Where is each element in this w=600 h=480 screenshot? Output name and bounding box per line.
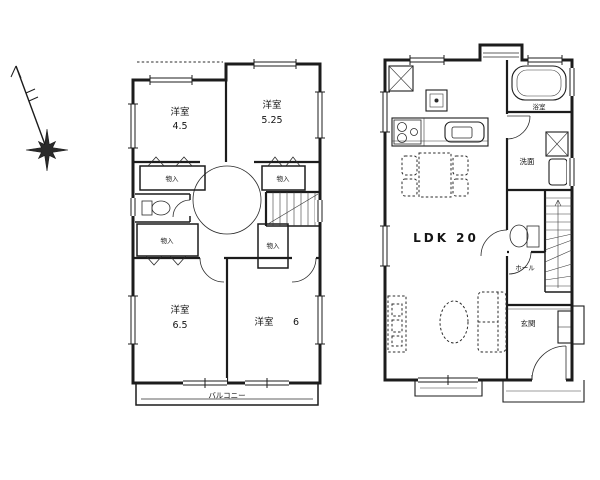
balcony-label: バルコニー — [208, 391, 245, 400]
room-size: 6 — [293, 317, 299, 328]
floorplan-2f: バルコニー 物入 物入 物入 — [128, 59, 325, 405]
room-name: 洋室 — [170, 304, 189, 316]
bath-label: 浴室 — [533, 102, 547, 111]
closet-label: 物入 — [267, 241, 281, 250]
closet-se: 物入 — [258, 224, 288, 268]
room-name: 洋室 — [254, 316, 273, 328]
tv-board — [388, 296, 406, 352]
washroom-label: 洗面 — [520, 156, 535, 166]
stairs-1f — [545, 198, 572, 292]
living-table — [440, 301, 468, 343]
kitchen — [389, 66, 488, 146]
refrigerator-space — [389, 66, 413, 91]
toilet-1f — [507, 190, 545, 274]
room-size: 4.5 — [172, 121, 187, 132]
stairs-2f — [266, 192, 320, 226]
room-name: 洋室 — [170, 106, 189, 118]
hall-door-arcs — [193, 166, 261, 234]
compass-icon — [11, 66, 68, 171]
room-nw-label: 洋室 4.5 — [170, 106, 189, 132]
toilet-2f — [135, 194, 190, 222]
room-ne-label: 洋室 5.25 — [261, 99, 282, 126]
room-sw-label: 洋室 6.5 — [170, 304, 189, 331]
floorplan-drawing: バルコニー 物入 物入 物入 — [0, 0, 600, 480]
room-se-label: 洋室 6 — [254, 316, 299, 328]
floor-hatch — [426, 90, 447, 111]
dining-set — [402, 153, 468, 197]
closet-label: 物入 — [277, 174, 291, 183]
hall-label: ホール — [515, 264, 535, 272]
entrance-label: 玄関 — [521, 318, 536, 328]
closet-label: 物入 — [166, 174, 180, 183]
room-size: 6.5 — [172, 320, 187, 331]
bathroom: 浴室 — [507, 66, 572, 112]
ldk-label: LDK 20 — [413, 231, 479, 245]
sofa — [478, 292, 506, 352]
floorplan-1f: 浴室 洗面 — [380, 45, 584, 402]
room-size: 5.25 — [261, 115, 282, 126]
washroom: 洗面 — [507, 116, 572, 190]
floorplan-page: バルコニー 物入 物入 物入 — [0, 0, 600, 480]
kitchen-counter — [392, 118, 488, 146]
room-name: 洋室 — [262, 99, 281, 111]
entrance: 玄関 — [507, 305, 572, 384]
closet-label: 物入 — [161, 236, 175, 245]
